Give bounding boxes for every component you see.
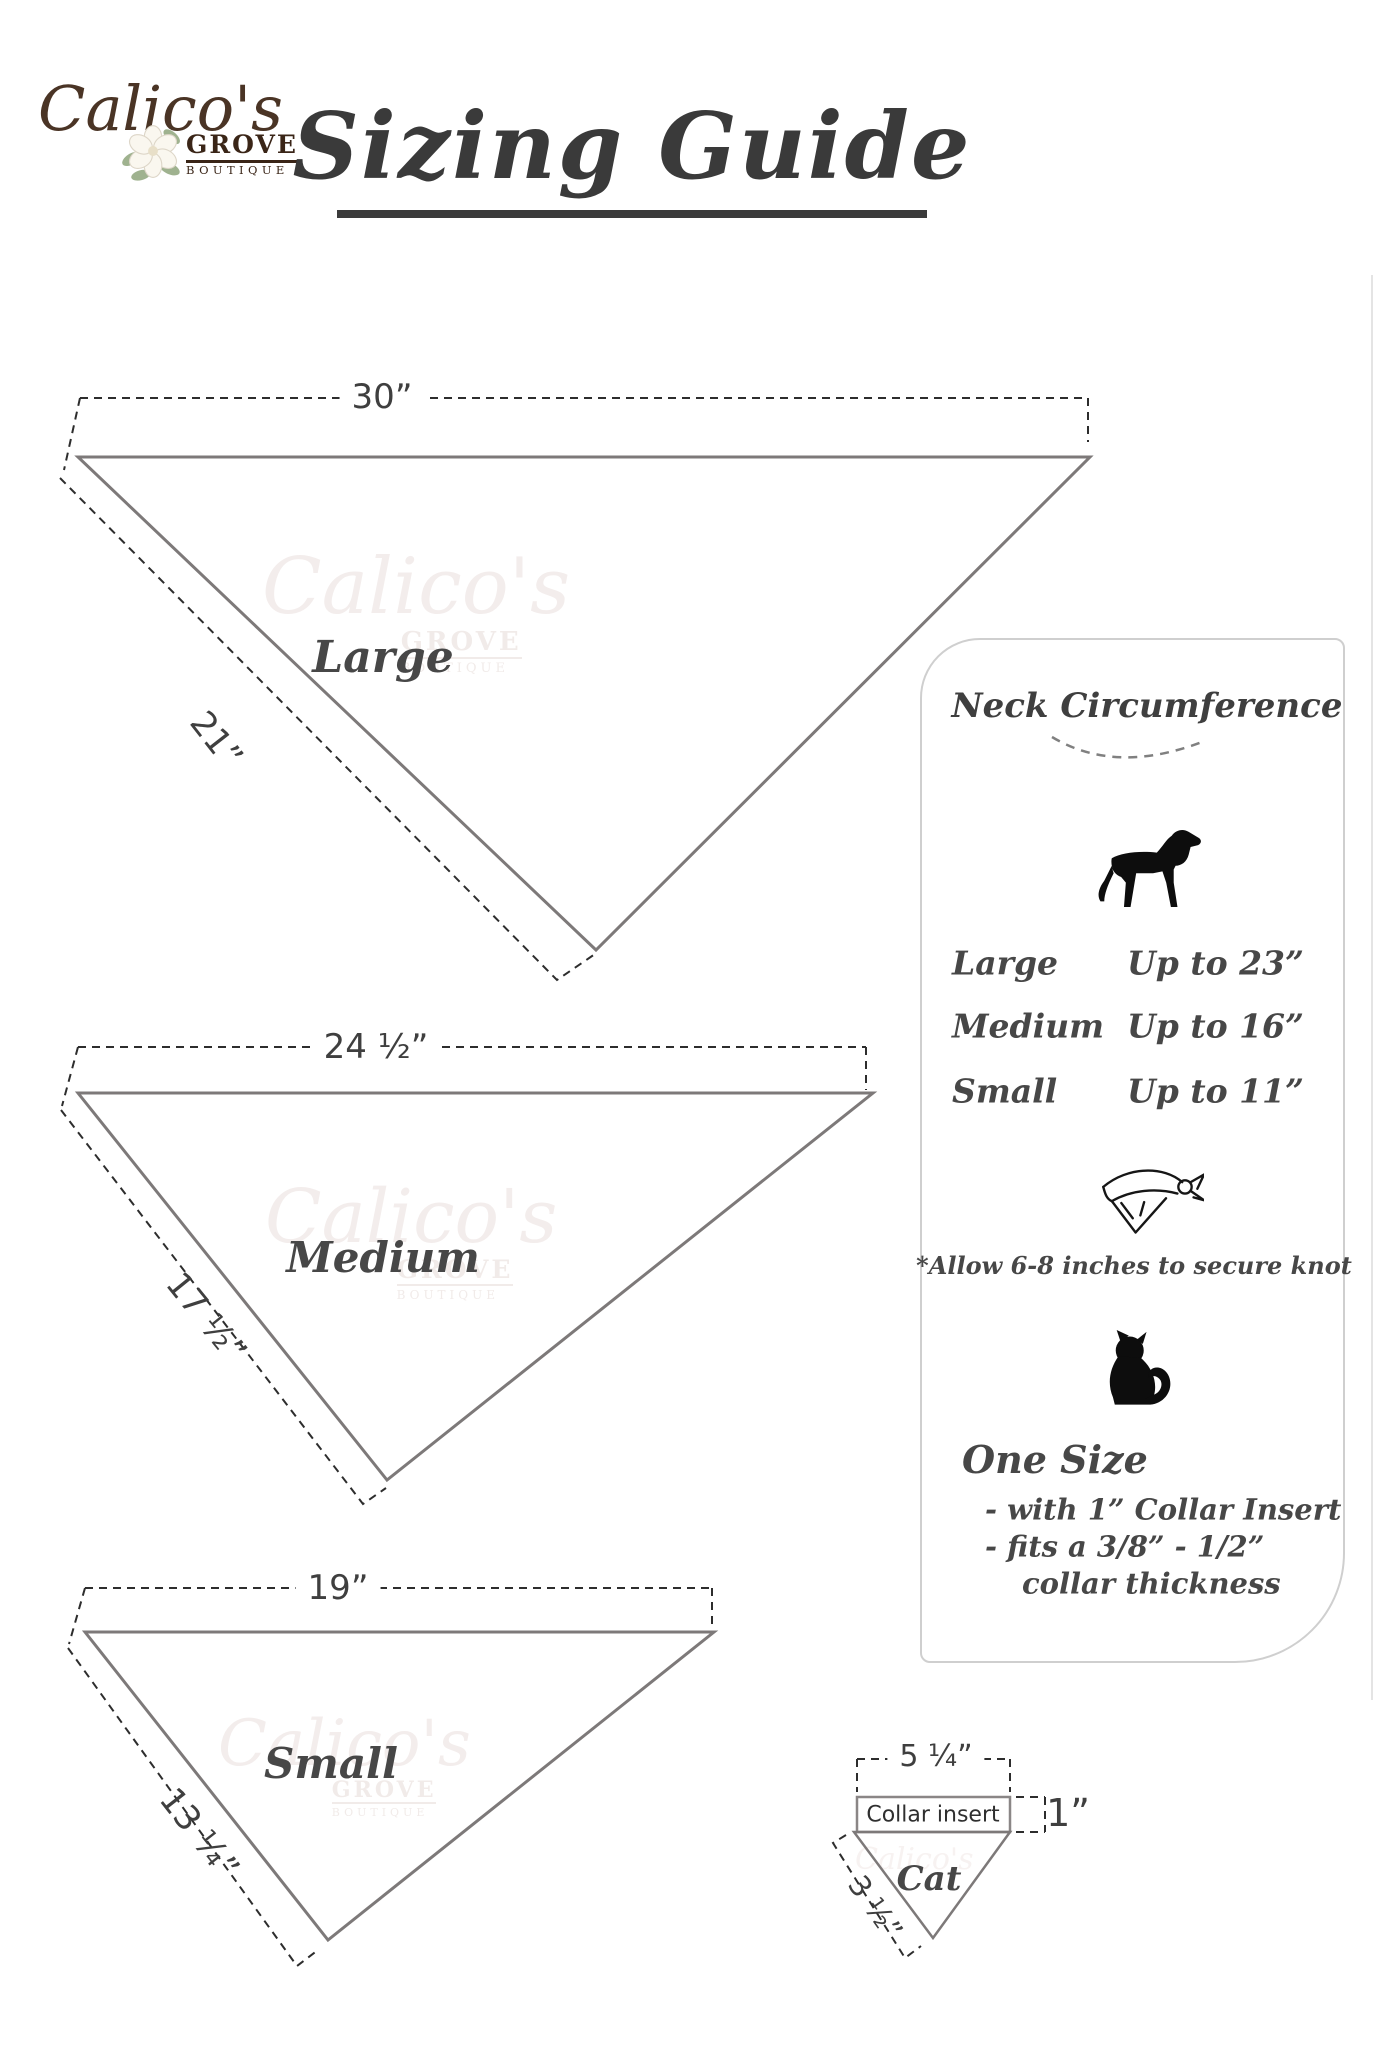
one-size-heading: One Size [962,1441,1148,1479]
large-bandana-outline [78,457,1090,950]
row-large-size: Large [952,947,1127,980]
collar-insert-label: Collar insert [866,1803,999,1828]
medium-dim-left-tick [62,1047,78,1106]
flower-icon [120,118,186,184]
neck-measure-arc [1052,737,1202,757]
row-medium-fit: Up to 16” [1127,1007,1304,1046]
logo-grove-text: GROVE [186,130,298,163]
sizing-guide-page: Calico's GROVE BOUTIQUE Calico's GROVE B… [0,0,1376,2060]
cat-icon [1098,1330,1182,1414]
row-small-fit: Up to 11” [1127,1072,1304,1111]
small-bandana-label: Small [264,1743,398,1785]
large-top-dim-label: 30” [340,380,425,414]
cat-insert-height-label: 1” [1034,1794,1102,1832]
logo-boutique-text: BOUTIQUE [186,163,289,177]
large-bandana-label: Large [312,636,453,680]
knot-note: *Allow 6-8 inches to secure knot [916,1254,1352,1278]
row-medium-size: Medium [952,1010,1127,1043]
row-small: SmallUp to 11” [952,1075,1304,1108]
large-side-dim-line [60,478,595,980]
large-dim-left-tick [64,398,80,470]
row-large-fit: Up to 23” [1127,944,1304,983]
page-title: Sizing Guide [292,92,971,200]
dog-icon [1093,824,1215,914]
row-small-size: Small [952,1075,1127,1108]
medium-bandana-label: Medium [286,1237,480,1279]
medium-top-dim-label: 24 ½” [312,1030,441,1064]
one-size-line1: - with 1” Collar Insert [985,1496,1341,1525]
cat-top-dim-label: 5 ¼” [887,1742,984,1772]
one-size-line2: - fits a 3/8” - 1/2” [985,1533,1264,1562]
row-medium: MediumUp to 16” [952,1010,1304,1043]
one-size-line3: collar thickness [1022,1570,1281,1599]
panel-heading: Neck Circumference [952,689,1343,723]
title-underline [337,210,927,218]
row-large: LargeUp to 23” [952,947,1304,980]
cat-bandana-label: Cat [897,1862,962,1896]
bandana-icon [1090,1160,1204,1248]
small-top-dim-label: 19” [296,1571,381,1605]
small-dim-left-tick [69,1588,85,1644]
